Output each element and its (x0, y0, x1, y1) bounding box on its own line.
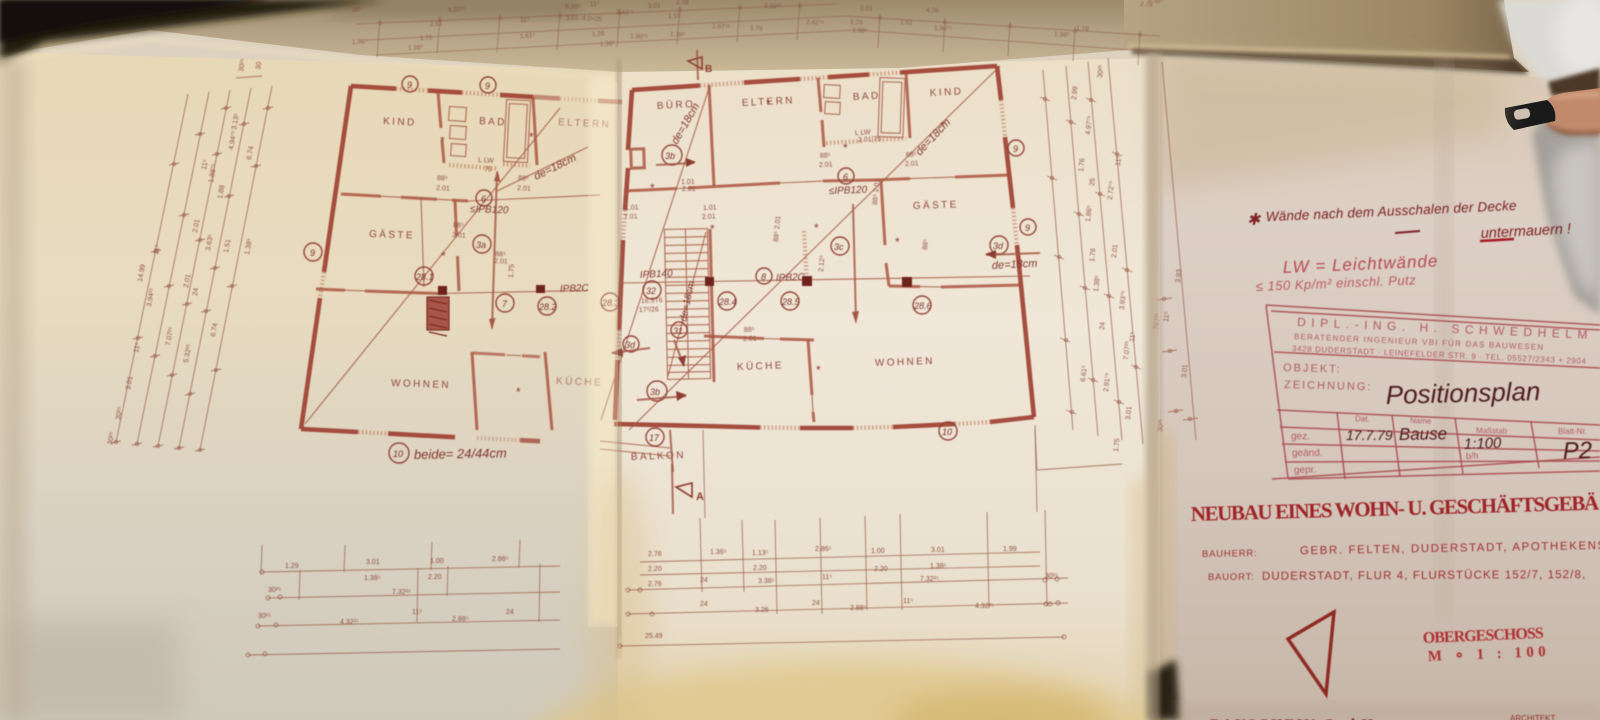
svg-text:9: 9 (1013, 144, 1018, 154)
svg-text:1.28: 1.28 (592, 30, 605, 38)
svg-text:9: 9 (407, 80, 412, 90)
svg-text:24: 24 (192, 287, 200, 296)
svg-text:KÜCHE: KÜCHE (737, 359, 784, 373)
svg-text:ARCHITEKT: ARCHITEKT (1510, 714, 1555, 720)
svg-text:1.90⁷⁵: 1.90⁷⁵ (630, 33, 648, 41)
svg-text:BAUORT:: BAUORT: (1208, 572, 1255, 583)
svg-text:3.01: 3.01 (648, 2, 661, 10)
svg-text:BAD: BAD (853, 91, 881, 103)
svg-text:2.42⁷⁵: 2.42⁷⁵ (616, 9, 634, 17)
svg-text:2.01: 2.01 (452, 232, 466, 240)
svg-text:24: 24 (700, 601, 708, 608)
svg-text:32: 32 (646, 286, 656, 296)
svg-text:1.00: 1.00 (871, 548, 885, 555)
svg-text:B: B (705, 64, 712, 75)
svg-text:1.76: 1.76 (850, 19, 863, 27)
svg-text:2.20: 2.20 (753, 565, 767, 572)
svg-text:2.86⁵: 2.86⁵ (492, 556, 509, 563)
svg-text:*: * (710, 222, 715, 236)
svg-text:4.76: 4.76 (926, 7, 939, 15)
svg-text:L LW: L LW (478, 157, 494, 165)
svg-text:1.36⁵: 1.36⁵ (352, 38, 368, 46)
svg-text:3.93: 3.93 (1175, 269, 1183, 283)
svg-text:1.76: 1.76 (1089, 248, 1097, 262)
svg-text:8: 8 (761, 272, 766, 282)
svg-text:2.01: 2.01 (682, 186, 696, 193)
svg-text:10: 10 (942, 427, 952, 437)
svg-text:31: 31 (673, 326, 683, 336)
svg-text:1.67⁷⁵: 1.67⁷⁵ (712, 23, 730, 31)
svg-text:*: * (529, 130, 534, 144)
svg-text:7.32²⁵: 7.32²⁵ (920, 576, 939, 583)
svg-text:3.38⁵: 3.38⁵ (758, 578, 775, 585)
svg-text:30²⁵: 30²⁵ (268, 587, 281, 594)
svg-text:A: A (696, 491, 704, 503)
svg-text:1.90⁷⁵: 1.90⁷⁵ (934, 25, 952, 33)
svg-text:gez.: gez. (1291, 431, 1310, 442)
svg-text:10: 10 (393, 449, 403, 459)
svg-text:88⁵: 88⁵ (922, 239, 930, 250)
svg-text:1.01: 1.01 (625, 204, 639, 212)
svg-text:*: * (940, 119, 945, 133)
svg-text:*: * (440, 134, 445, 148)
svg-text:2.78: 2.78 (676, 0, 689, 6)
svg-text:11⁵: 11⁵ (1129, 331, 1137, 342)
svg-text:25.49: 25.49 (645, 633, 663, 640)
svg-text:2.01: 2.01 (702, 213, 716, 221)
svg-text:24: 24 (700, 577, 708, 584)
svg-text:24: 24 (1099, 322, 1107, 331)
svg-text:ZEICHNUNG:: ZEICHNUNG: (1284, 379, 1373, 393)
svg-text:3b: 3b (650, 387, 660, 397)
svg-text:88⁵: 88⁵ (518, 175, 529, 183)
svg-text:DUDERSTADT, FLUR 4, FLURSTÜCKE: DUDERSTADT, FLUR 4, FLURSTÜCKE 152/7, 15… (1262, 569, 1586, 583)
svg-text:2.01: 2.01 (1111, 244, 1119, 258)
svg-text:1.29: 1.29 (285, 563, 299, 570)
svg-text:Blatt-Nr.: Blatt-Nr. (1558, 427, 1587, 436)
svg-text:2.20: 2.20 (874, 566, 888, 573)
svg-text:BAD: BAD (479, 116, 507, 128)
svg-text:1.13⁵: 1.13⁵ (752, 550, 769, 557)
svg-text:3.01: 3.01 (860, 5, 873, 13)
svg-text:Bause: Bause (1399, 424, 1448, 444)
svg-text:9: 9 (310, 248, 315, 258)
svg-text:88⁵: 88⁵ (906, 151, 917, 159)
svg-text:3b: 3b (665, 151, 675, 161)
svg-text:≤IPB120: ≤IPB120 (470, 204, 509, 216)
svg-text:GÄSTE: GÄSTE (369, 228, 415, 242)
svg-text:2.01: 2.01 (743, 336, 757, 343)
svg-text:28.5: 28.5 (781, 297, 801, 307)
svg-text:11⁵: 11⁵ (520, 16, 530, 24)
svg-text:28.2: 28.2 (538, 302, 557, 312)
svg-text:1.76: 1.76 (1078, 158, 1086, 172)
svg-text:2.01: 2.01 (517, 185, 531, 193)
svg-text:6: 6 (481, 194, 486, 204)
svg-text:25: 25 (1089, 178, 1097, 187)
svg-text:beide= 24/44cm: beide= 24/44cm (414, 445, 507, 462)
svg-text:75: 75 (484, 166, 492, 173)
svg-text:11⁵: 11⁵ (590, 0, 600, 8)
svg-text:1.36⁵: 1.36⁵ (710, 549, 727, 556)
svg-text:Positionsplan: Positionsplan (1385, 376, 1540, 410)
svg-text:*: * (814, 221, 819, 235)
svg-text:11⁵: 11⁵ (1163, 311, 1171, 322)
svg-text:1.61⁵: 1.61⁵ (520, 32, 536, 40)
svg-text:24: 24 (506, 609, 514, 616)
svg-text:P2: P2 (1562, 437, 1592, 465)
svg-text:3d: 3d (625, 340, 636, 350)
svg-text:1.76: 1.76 (420, 34, 433, 42)
svg-text:IPB140: IPB140 (640, 268, 674, 281)
svg-text:24: 24 (812, 600, 820, 607)
svg-text:17.7.79: 17.7.79 (1346, 427, 1393, 443)
svg-text:2.76: 2.76 (648, 551, 662, 558)
svg-text:2.20: 2.20 (428, 574, 442, 581)
svg-text:3.26: 3.26 (755, 607, 769, 614)
svg-text:1.15: 1.15 (668, 12, 681, 20)
svg-text:28.6: 28.6 (913, 301, 932, 311)
svg-text:2.01: 2.01 (819, 161, 833, 169)
svg-text:2.86⁵: 2.86⁵ (815, 546, 832, 553)
svg-text:3.01: 3.01 (566, 14, 579, 22)
svg-text:2.12⁵: 2.12⁵ (818, 255, 826, 272)
svg-text:9: 9 (485, 81, 490, 91)
svg-text:*: * (650, 181, 655, 195)
svg-text:30: 30 (255, 61, 263, 70)
svg-text:Dat.: Dat. (1355, 414, 1370, 424)
svg-text:2.01: 2.01 (494, 258, 508, 266)
svg-text:1.38⁵: 1.38⁵ (408, 44, 424, 52)
svg-text:11⁵: 11⁵ (1115, 155, 1123, 166)
svg-text:2.76: 2.76 (648, 581, 662, 588)
svg-text:KIND: KIND (930, 86, 964, 99)
svg-text:1.51: 1.51 (900, 19, 913, 27)
svg-text:*: * (516, 385, 521, 399)
svg-text:3.01: 3.01 (1181, 364, 1189, 378)
svg-text:≤IPB120: ≤IPB120 (829, 185, 868, 197)
svg-text:11⁵: 11⁵ (822, 574, 832, 581)
svg-text:IPB2C: IPB2C (560, 283, 590, 295)
svg-text:1.76: 1.76 (750, 25, 763, 33)
svg-text:*: * (843, 141, 848, 155)
svg-text:4.09²⁵: 4.09²⁵ (764, 3, 782, 11)
svg-text:9: 9 (1025, 223, 1030, 233)
svg-text:30²⁵: 30²⁵ (258, 613, 271, 620)
svg-text:2.01: 2.01 (436, 185, 450, 193)
svg-text:de=18cm: de=18cm (992, 258, 1038, 272)
svg-text:GÄSTE: GÄSTE (913, 198, 959, 212)
svg-text:30²⁵: 30²⁵ (1097, 64, 1105, 78)
svg-text:✱: ✱ (1247, 211, 1263, 229)
svg-text:2.51: 2.51 (430, 20, 443, 28)
svg-text:OBJEKT:: OBJEKT: (1283, 362, 1342, 376)
svg-text:1.01: 1.01 (681, 179, 695, 186)
svg-text:2.42⁷⁵: 2.42⁷⁵ (806, 19, 824, 27)
svg-text:WOHNEN: WOHNEN (391, 378, 451, 391)
svg-text:1.75: 1.75 (1113, 438, 1121, 452)
svg-text:17: 17 (649, 433, 660, 443)
svg-text:*: * (895, 235, 900, 249)
svg-text:3.01: 3.01 (931, 547, 945, 554)
svg-text:1.00: 1.00 (430, 558, 444, 565)
svg-text:6: 6 (843, 172, 848, 182)
svg-text:*: * (816, 363, 821, 377)
svg-text:28.4: 28.4 (718, 297, 737, 307)
svg-text:7.32²⁵: 7.32²⁵ (392, 589, 411, 596)
svg-text:4.32²⁵: 4.32²⁵ (975, 603, 994, 610)
svg-text:6.38⁵: 6.38⁵ (565, 3, 581, 11)
svg-text:2.01|75: 2.01|75 (858, 136, 882, 144)
svg-text:11⁵: 11⁵ (903, 598, 913, 605)
svg-text:30²⁵: 30²⁵ (1045, 573, 1058, 580)
svg-text:4.32²⁵: 4.32²⁵ (448, 6, 466, 14)
svg-text:IPB2C: IPB2C (776, 272, 806, 284)
svg-text:3.01: 3.01 (1125, 406, 1133, 420)
svg-text:88⁵: 88⁵ (453, 222, 464, 230)
svg-text:2.01: 2.01 (905, 160, 919, 168)
svg-text:1.01: 1.01 (703, 204, 717, 212)
svg-text:2.99: 2.99 (1071, 86, 1079, 100)
svg-text:KIND: KIND (383, 116, 417, 129)
svg-text:88⁵: 88⁵ (744, 327, 755, 334)
svg-text:BALKON: BALKON (631, 450, 686, 463)
svg-text:*: * (766, 97, 771, 111)
svg-text:1.78: 1.78 (1076, 25, 1089, 33)
svg-text:4.32²⁵: 4.32²⁵ (340, 619, 359, 626)
svg-text:1.38⁵: 1.38⁵ (852, 27, 868, 35)
svg-text:1.38⁵: 1.38⁵ (670, 31, 686, 39)
svg-text:28.1: 28.1 (415, 272, 434, 282)
svg-text:2.88⁵: 2.88⁵ (452, 616, 469, 623)
svg-text:88⁵: 88⁵ (820, 152, 831, 160)
svg-text:11⁵: 11⁵ (412, 609, 422, 616)
svg-text:88⁵: 88⁵ (437, 175, 448, 183)
svg-text:1.38⁵: 1.38⁵ (364, 575, 381, 582)
svg-text:17²/26: 17²/26 (639, 306, 659, 314)
svg-text:1.38⁵: 1.38⁵ (930, 563, 947, 570)
svg-text:geänd.: geänd. (1292, 448, 1323, 459)
svg-text:16.5T6: 16.5T6 (641, 297, 663, 305)
svg-text:*: * (441, 249, 446, 263)
svg-text:gepr.: gepr. (1294, 465, 1316, 476)
svg-text:WOHNEN: WOHNEN (875, 356, 935, 369)
svg-text:4.0=25: 4.0=25 (582, 15, 603, 23)
svg-text:1.75: 1.75 (508, 264, 516, 278)
svg-text:3c: 3c (834, 242, 844, 252)
svg-text:2.20: 2.20 (648, 566, 662, 573)
svg-text:3d: 3d (993, 241, 1004, 251)
svg-text:7.01: 7.01 (624, 213, 638, 221)
svg-text:1.38⁵: 1.38⁵ (1054, 31, 1070, 39)
svg-text:3a: 3a (476, 240, 486, 250)
svg-text:3.01: 3.01 (366, 559, 380, 566)
svg-text:1.99: 1.99 (1003, 546, 1017, 553)
svg-text:BAUHERR:: BAUHERR: (1202, 548, 1258, 560)
svg-text:30⁵: 30⁵ (351, 6, 362, 14)
svg-text:1.38⁵: 1.38⁵ (600, 40, 616, 48)
svg-text:2.88⁵: 2.88⁵ (850, 605, 867, 612)
svg-text:b/h: b/h (1466, 451, 1479, 461)
